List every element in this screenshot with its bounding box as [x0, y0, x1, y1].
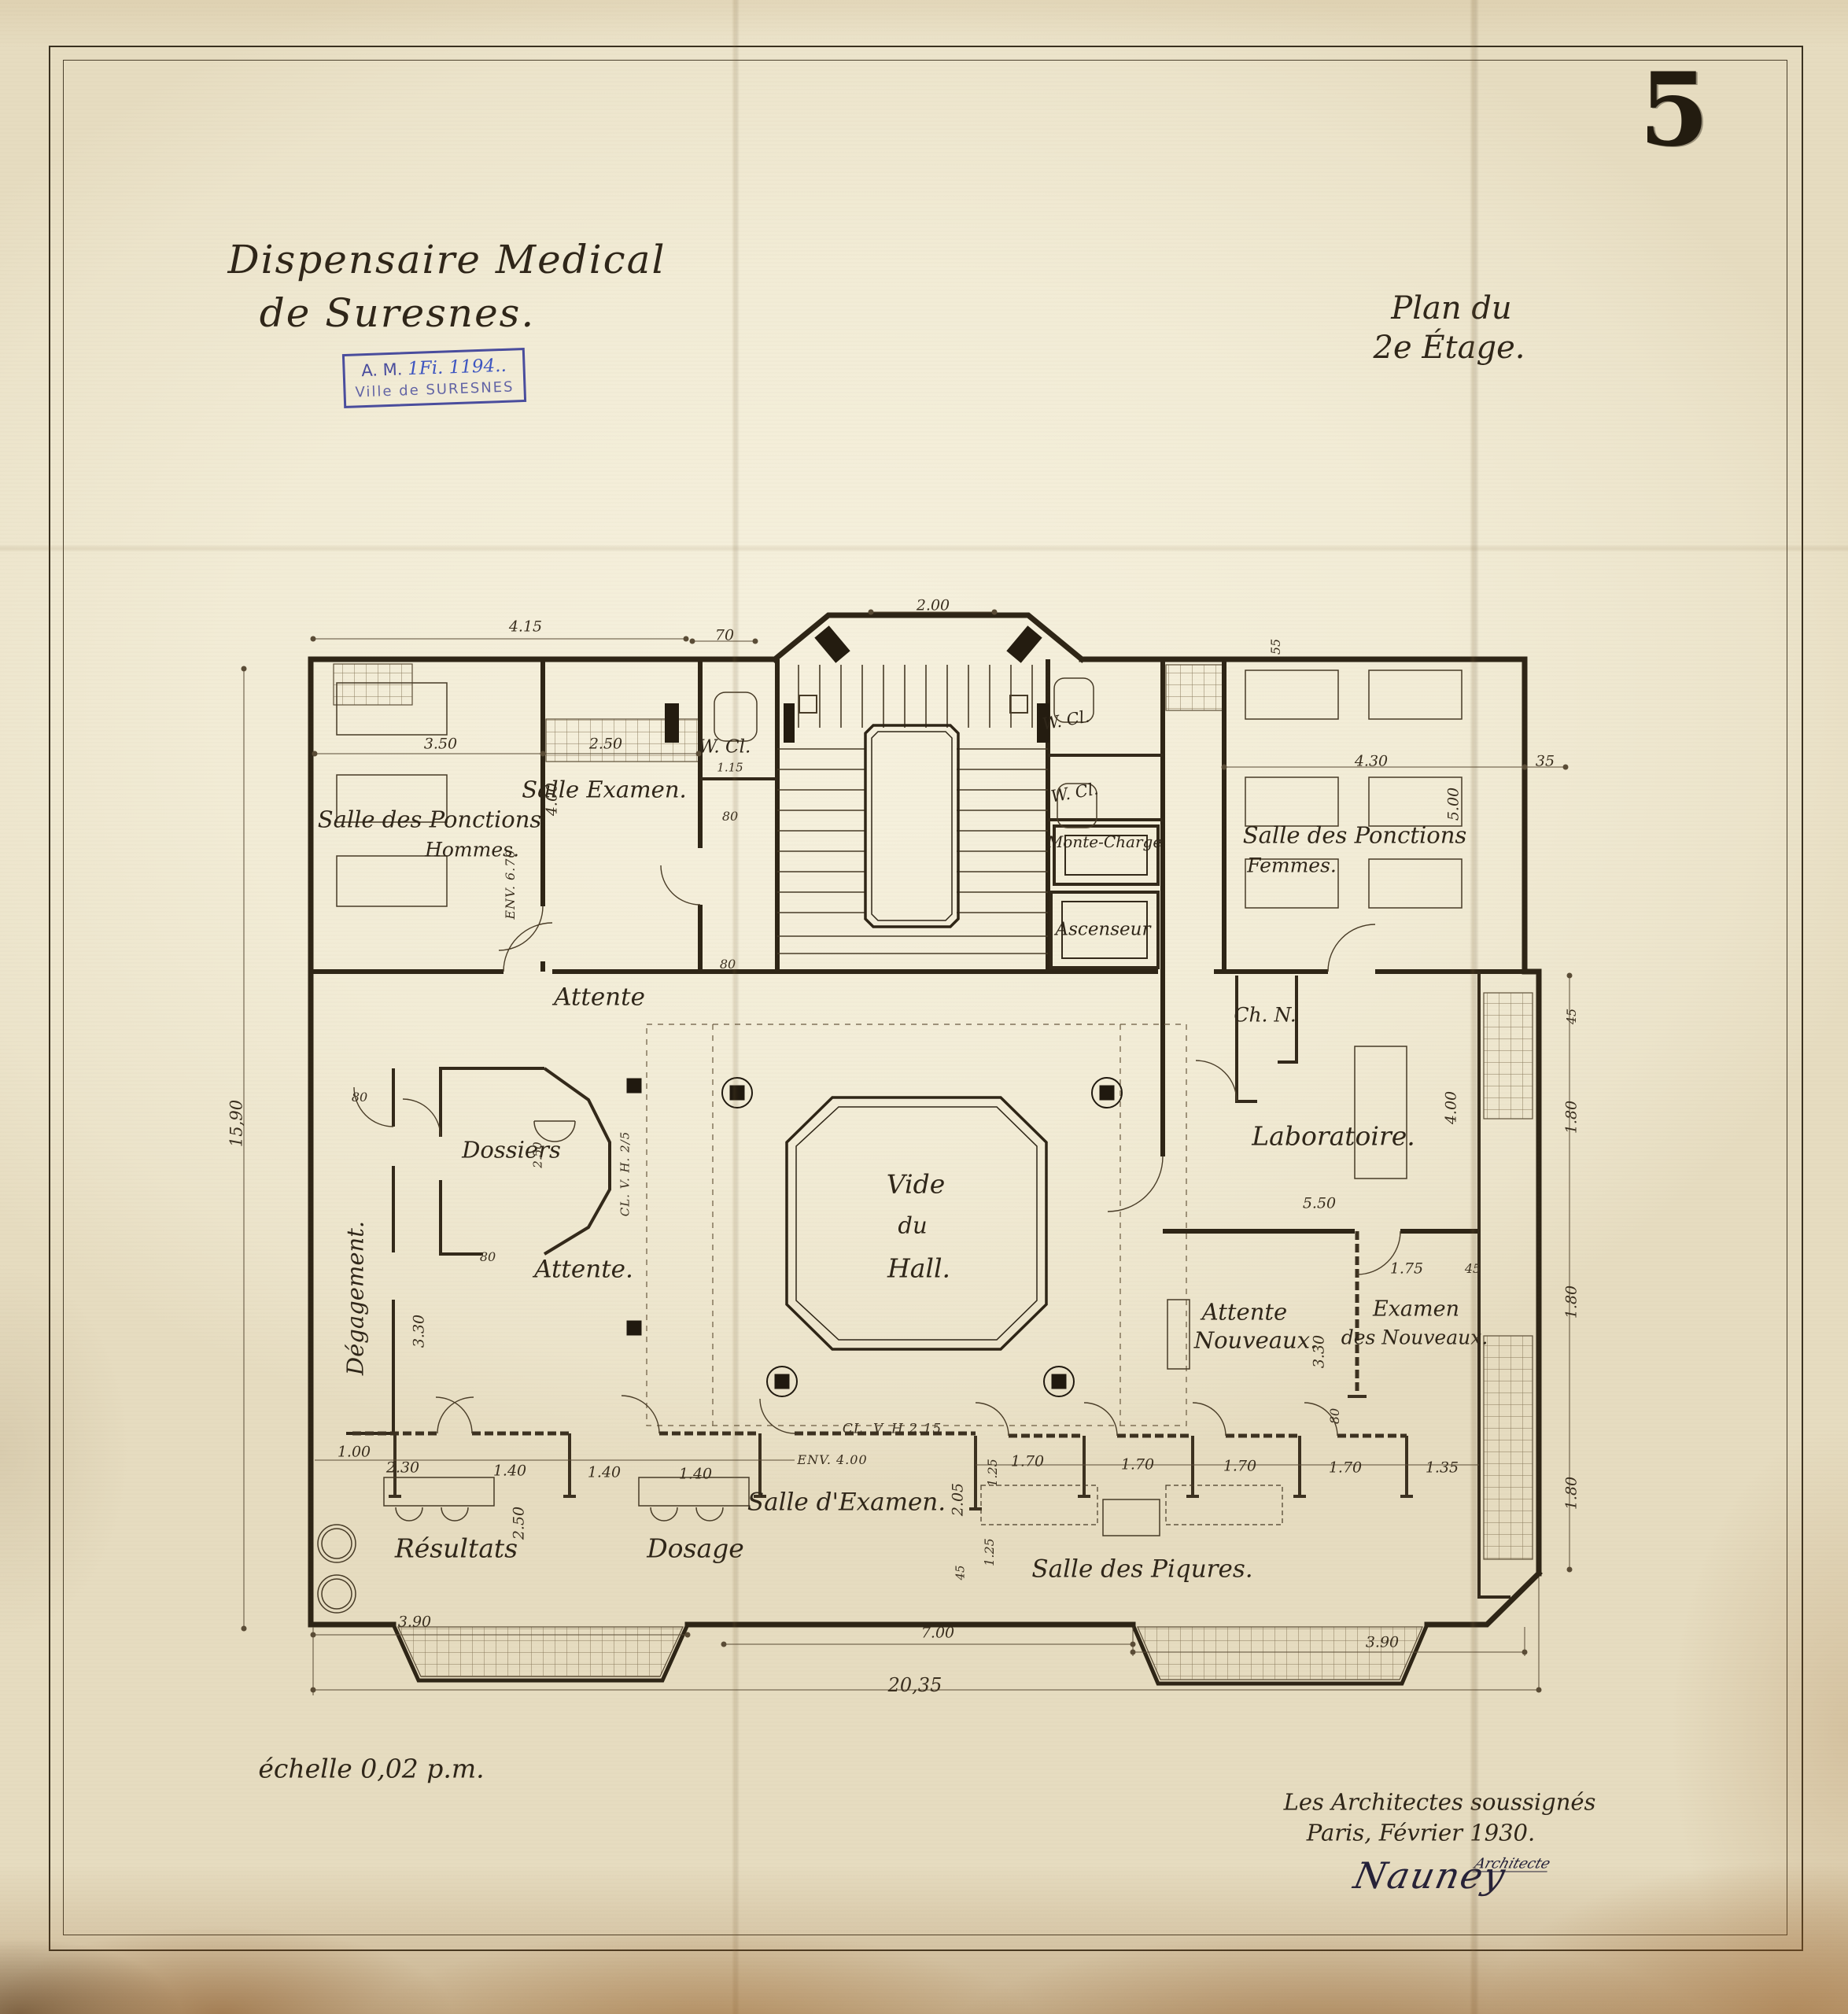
- drawing-title-line2: de Suresnes.: [260, 293, 535, 333]
- dim-45a: 45: [1566, 1009, 1578, 1024]
- dim-390b: 3.90: [1366, 1636, 1399, 1651]
- dim-100: 1.00: [338, 1445, 371, 1460]
- dim-170a: 1.70: [1011, 1455, 1044, 1470]
- dim-175: 1.75: [1390, 1262, 1423, 1277]
- dim-45b: 45: [1465, 1263, 1481, 1275]
- architects-note-line1: Les Architectes soussignés: [1284, 1791, 1596, 1814]
- dim-230: 2.30: [386, 1461, 419, 1476]
- dim-170b: 1.70: [1121, 1458, 1154, 1473]
- room-label-monte-charge: Monte-Charge: [1047, 834, 1162, 850]
- dim-550: 5.50: [1303, 1197, 1336, 1212]
- dim-500: 5.00: [1447, 788, 1462, 821]
- scale-note: échelle 0,02 p.m.: [258, 1756, 484, 1782]
- dim-wc-left: 1.15: [717, 762, 743, 774]
- stamp-city: Ville de SURESNES: [352, 378, 518, 400]
- dim-180b: 1.80: [1565, 1285, 1580, 1319]
- room-label-salle-d-examen: Salle d'Examen.: [747, 1491, 946, 1515]
- room-label-ch-n: Ch. N.: [1234, 1005, 1296, 1025]
- annotation-env-4: ENV. 4.00: [797, 1454, 867, 1466]
- room-label-attente-lower: Attente.: [534, 1258, 633, 1282]
- plan-title-line1: Plan du: [1391, 293, 1511, 324]
- dim-415: 4.15: [509, 620, 542, 635]
- room-label-laboratoire: Laboratoire.: [1252, 1123, 1415, 1149]
- architects-note-line2: Paris, Février 1930.: [1307, 1822, 1535, 1845]
- sheet-number: 5: [1639, 60, 1709, 160]
- dim-80e: 80: [1329, 1408, 1341, 1424]
- dim-45c: 45: [955, 1565, 967, 1580]
- room-label-dossiers: Dossiers: [462, 1139, 561, 1162]
- stair-well-void: [865, 725, 958, 927]
- room-label-ponctions-hommes-1: Salle des Ponctions: [318, 809, 542, 832]
- dim-700: 7.00: [921, 1626, 954, 1641]
- dim-250b: 2.50: [512, 1507, 527, 1540]
- dim-180c: 1.80: [1565, 1477, 1580, 1510]
- annotation-clv-bay: CL. V. H. 2/5: [620, 1131, 632, 1216]
- room-label-vide-1: Vide: [887, 1171, 945, 1197]
- room-label-attente-nouveaux-1: Attente: [1202, 1301, 1287, 1324]
- room-label-examen-nouveaux-1: Examen: [1373, 1299, 1459, 1320]
- annotation-env-670: ENV. 6.70: [504, 849, 517, 919]
- room-label-vide-2: du: [898, 1215, 927, 1238]
- dim-140c: 1.40: [679, 1467, 712, 1482]
- dim-2035: 20,35: [888, 1676, 942, 1695]
- room-label-degagement: Dégagement.: [345, 1221, 367, 1375]
- dim-205: 2.05: [951, 1483, 966, 1516]
- dim-125b: 1.25: [983, 1538, 996, 1566]
- dim-330l: 3.30: [412, 1315, 427, 1348]
- dim-180a: 1.80: [1565, 1101, 1580, 1134]
- dim-70: 70: [715, 629, 734, 644]
- stamp-prefix: A. M.: [361, 360, 403, 380]
- dim-250a: 2.50: [589, 737, 622, 752]
- annotation-clv-wall: CL. V. H 2.15: [843, 1423, 942, 1437]
- dim-dossiers: 2.50: [533, 1142, 544, 1167]
- architect-countersign: Architecte: [1472, 1857, 1551, 1872]
- dim-400a: 4.00: [545, 783, 560, 816]
- cabin-linings: [1062, 835, 1147, 958]
- room-label-ponctions-femmes-2: Femmes.: [1247, 856, 1337, 876]
- staircase: [777, 665, 1048, 954]
- archive-stamp: A. M. 1Fi. 1194.. Ville de SURESNES: [342, 348, 526, 408]
- dim-430: 4.30: [1355, 754, 1388, 769]
- dim-200: 2.00: [917, 599, 950, 614]
- dim-330r: 3.30: [1312, 1335, 1327, 1368]
- stamp-reference: 1Fi. 1194..: [408, 356, 507, 379]
- dim-125a: 1.25: [987, 1459, 999, 1487]
- room-label-salle-piqures: Salle des Piqures.: [1031, 1558, 1252, 1582]
- dim-80a: 80: [722, 810, 738, 823]
- drawing-title-line1: Dispensaire Medical: [228, 240, 666, 279]
- dim-135: 1.35: [1426, 1461, 1459, 1476]
- plan-title-line2: 2e Étage.: [1374, 332, 1525, 363]
- room-label-attente-upper: Attente: [554, 986, 645, 1010]
- dim-140a: 1.40: [493, 1464, 526, 1479]
- room-label-resultats: Résultats: [395, 1536, 518, 1562]
- room-label-dosage: Dosage: [647, 1536, 744, 1562]
- dim-80b: 80: [720, 958, 736, 971]
- dim-55: 55: [1270, 639, 1282, 655]
- dim-350: 3.50: [424, 737, 457, 752]
- dim-390a: 3.90: [398, 1615, 431, 1630]
- dim-1590: 15,90: [229, 1100, 245, 1147]
- dim-400b: 4.00: [1444, 1091, 1459, 1124]
- dim-140b: 1.40: [588, 1466, 621, 1481]
- drawing-sheet: 5 Dispensaire Medical de Suresnes. Plan …: [0, 0, 1848, 2014]
- dim-80c: 80: [352, 1091, 367, 1104]
- room-label-ascenseur: Ascenseur: [1056, 921, 1151, 939]
- dim-170c: 1.70: [1223, 1459, 1256, 1474]
- room-label-wc-left: W. Cl.: [699, 739, 751, 757]
- room-label-examen-nouveaux-2: des Nouveaux.: [1341, 1328, 1488, 1348]
- dim-80d: 80: [480, 1251, 496, 1263]
- room-label-attente-nouveaux-2: Nouveaux.: [1194, 1330, 1318, 1352]
- room-label-vide-3: Hall.: [887, 1256, 950, 1282]
- room-label-ponctions-femmes-1: Salle des Ponctions: [1243, 824, 1467, 847]
- dim-35: 35: [1536, 754, 1555, 769]
- dim-170d: 1.70: [1329, 1461, 1362, 1476]
